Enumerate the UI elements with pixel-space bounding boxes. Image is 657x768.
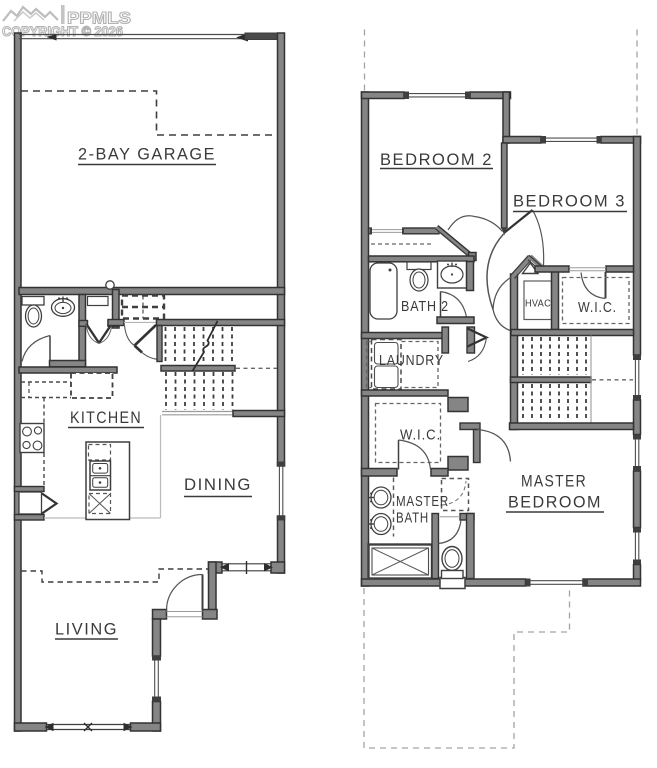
svg-text:W.I.C.: W.I.C.	[578, 300, 617, 316]
svg-text:BATH: BATH	[396, 511, 429, 527]
svg-text:BEDROOM: BEDROOM	[508, 493, 602, 512]
svg-text:DINING: DINING	[184, 475, 252, 494]
svg-text:KITCHEN: KITCHEN	[70, 408, 142, 427]
svg-text:LIVING: LIVING	[55, 620, 118, 639]
svg-text:HVAC: HVAC	[525, 299, 551, 310]
svg-text:BEDROOM 2: BEDROOM 2	[380, 150, 493, 169]
svg-text:LAUNDRY: LAUNDRY	[379, 353, 444, 369]
svg-text:MASTER: MASTER	[521, 472, 587, 491]
svg-text:2-BAY GARAGE: 2-BAY GARAGE	[78, 145, 216, 164]
svg-text:MASTER: MASTER	[396, 494, 449, 510]
svg-text:BATH 2: BATH 2	[401, 299, 449, 315]
svg-text:BEDROOM 3: BEDROOM 3	[513, 192, 626, 211]
